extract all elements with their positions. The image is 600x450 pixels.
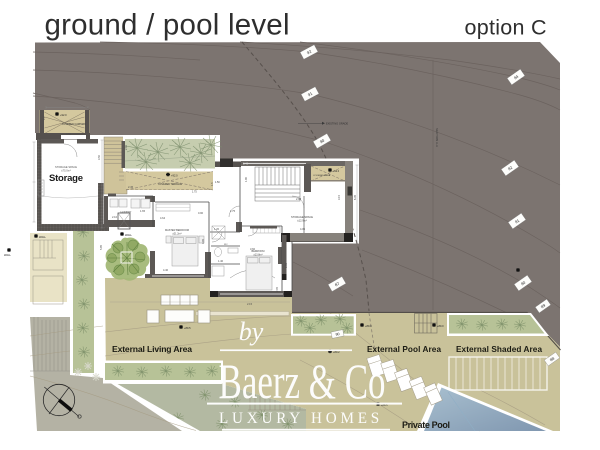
svg-text:3.50: 3.50 (97, 154, 101, 160)
svg-text:COVERED AREA: COVERED AREA (313, 174, 331, 177)
svg-text:+92.0: +92.0 (171, 174, 178, 178)
svg-text:±21.2m²: ±21.2m² (172, 233, 181, 236)
svg-text:0.90: 0.90 (198, 211, 204, 215)
svg-text:WC: WC (224, 244, 228, 246)
svg-text:+89.0: +89.0 (437, 324, 444, 328)
svg-text:2.45: 2.45 (128, 185, 134, 189)
svg-text:by: by (239, 317, 264, 346)
svg-text:ground / pool level: ground / pool level (45, 9, 290, 42)
svg-text:Baerz & Co: Baerz & Co (219, 353, 386, 409)
svg-text:option C: option C (465, 16, 547, 40)
svg-text:1.65: 1.65 (140, 209, 146, 213)
svg-text:4.05: 4.05 (300, 227, 306, 231)
svg-text:External Living Area: External Living Area (112, 344, 192, 354)
svg-text:2.15: 2.15 (247, 302, 253, 306)
svg-text:3.15: 3.15 (337, 194, 341, 200)
svg-text:WALL: WALL (39, 235, 47, 239)
svg-text:LUXURY HOMES: LUXURY HOMES (219, 410, 383, 427)
svg-text:3.95: 3.95 (201, 238, 205, 244)
svg-text:2.98: 2.98 (296, 197, 302, 201)
svg-text:5.85: 5.85 (99, 244, 103, 250)
svg-text:STORAGE SPACE: STORAGE SPACE (291, 215, 313, 219)
svg-text:4.64: 4.64 (160, 216, 166, 220)
svg-text:2.90: 2.90 (124, 144, 128, 150)
svg-text:+92.0: +92.0 (333, 170, 340, 173)
svg-text:±12.9m²: ±12.9m² (297, 219, 307, 223)
svg-text:6.35: 6.35 (353, 194, 357, 200)
svg-text:COVERED CARPARK: COVERED CARPARK (62, 123, 86, 126)
svg-text:3.60: 3.60 (250, 247, 256, 251)
svg-text:4.50: 4.50 (66, 132, 72, 136)
svg-text:2.40: 2.40 (243, 162, 249, 166)
svg-text:+89.0: +89.0 (365, 324, 372, 328)
svg-text:WALL: WALL (125, 233, 133, 237)
svg-text:Storage: Storage (49, 173, 83, 184)
svg-text:External Shaded Area: External Shaded Area (456, 345, 542, 354)
svg-text:SECTION A-A: SECTION A-A (435, 128, 439, 147)
svg-text:1.50: 1.50 (215, 181, 220, 184)
svg-text:1.95: 1.95 (284, 262, 288, 268)
svg-text:1.40: 1.40 (218, 259, 224, 263)
svg-text:1.2: 1.2 (42, 116, 46, 120)
svg-text:1.75: 1.75 (230, 209, 236, 213)
svg-text:1.80: 1.80 (244, 176, 248, 182)
svg-text:90: 90 (335, 332, 340, 337)
svg-text:±75.0m²: ±75.0m² (61, 169, 71, 173)
svg-text:+92.0: +92.0 (60, 113, 67, 117)
svg-text:STORAGE SPACE: STORAGE SPACE (55, 165, 77, 169)
svg-text:1.20: 1.20 (214, 227, 220, 231)
svg-text:1.75: 1.75 (192, 191, 197, 194)
svg-text:2.10: 2.10 (112, 215, 118, 219)
svg-text:WALL: WALL (4, 253, 12, 257)
svg-text:COVERED TERRACE: COVERED TERRACE (158, 183, 182, 186)
svg-text:4.40: 4.40 (163, 268, 169, 272)
svg-text:2.05: 2.05 (275, 286, 279, 292)
svg-text:1.5: 1.5 (210, 182, 214, 186)
svg-text:EXISTING GRADE: EXISTING GRADE (326, 122, 348, 126)
svg-text:+89.5: +89.5 (184, 326, 191, 330)
svg-text:Private Pool: Private Pool (402, 420, 450, 430)
